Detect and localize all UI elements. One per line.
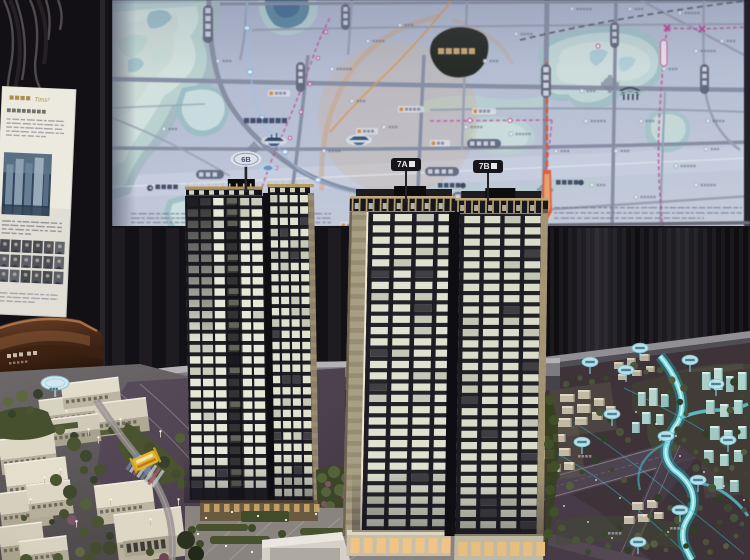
svg-text:6B: 6B	[241, 155, 251, 164]
